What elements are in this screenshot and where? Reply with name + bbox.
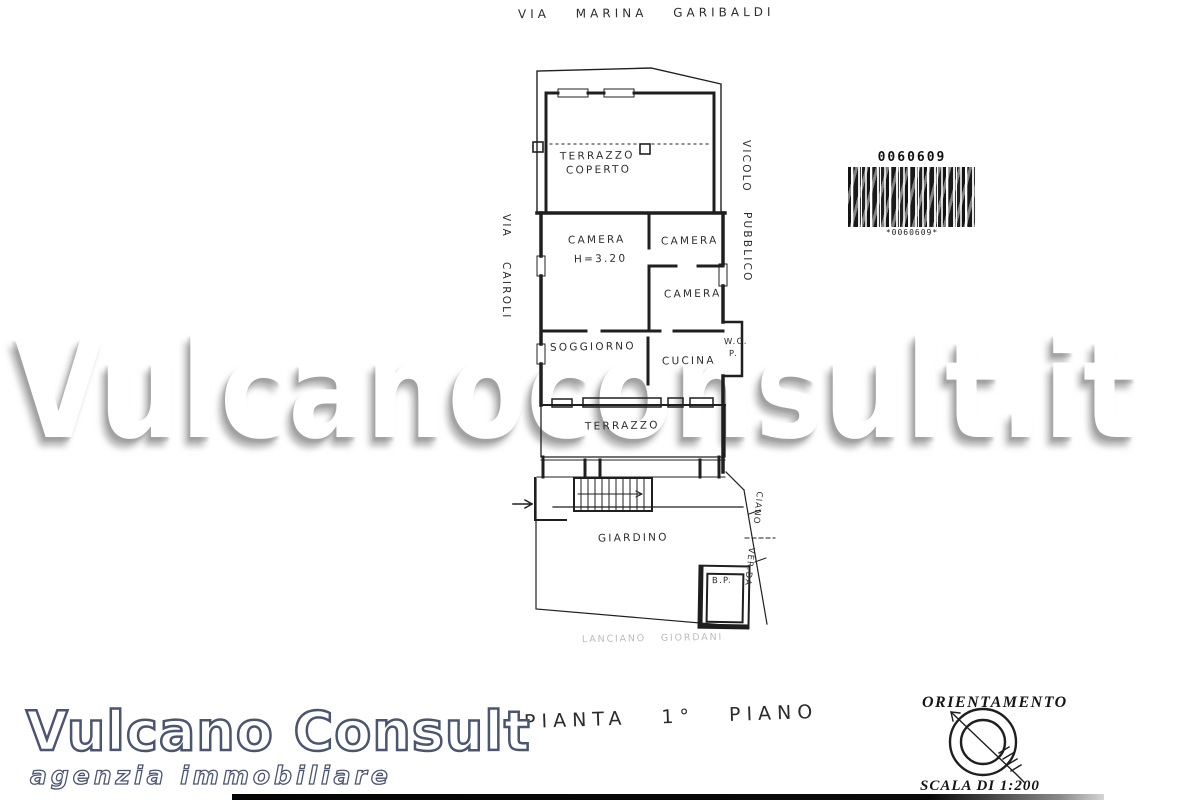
agency-logo-title: Vulcano Consult bbox=[26, 700, 531, 763]
column-symbol bbox=[640, 144, 650, 154]
street-label-left-2: CAIROLI bbox=[500, 262, 512, 320]
scale-label: SCALA DI 1:200 bbox=[920, 778, 1040, 795]
area-label-giardino: GIARDINO bbox=[598, 531, 669, 544]
room-label-terrazzo-coperto-2: COPERTO bbox=[566, 163, 631, 176]
floor-plan-drawing bbox=[0, 0, 1200, 803]
entry-arrow-icon bbox=[513, 500, 532, 508]
agency-logo: Vulcano Consult agenzia immobiliare bbox=[26, 700, 531, 790]
street-label-top: VIA MARINA GARIBALDI bbox=[518, 5, 775, 21]
barcode-block: 0060609 *0060609* bbox=[846, 150, 978, 237]
room-label-wc: W.C. bbox=[724, 337, 748, 347]
room-label-camera-2: CAMERA bbox=[661, 234, 719, 247]
compass-icon bbox=[950, 709, 1024, 782]
room-label-terrazzo: TERRAZZO bbox=[585, 419, 660, 432]
scan-edge-artifact bbox=[232, 794, 1104, 800]
street-label-right-1: VICOLO bbox=[740, 140, 752, 193]
barcode-footer: *0060609* bbox=[846, 228, 978, 237]
label-outbuilding: B.P. bbox=[712, 576, 732, 586]
room-label-camera-main: CAMERA bbox=[568, 233, 626, 246]
room-label-wc-p: P. bbox=[729, 349, 738, 359]
terrace-outer-wall bbox=[537, 68, 721, 212]
room-label-terrazzo-coperto: TERRAZZO bbox=[560, 149, 635, 162]
street-label-left-1: VIA bbox=[500, 214, 512, 238]
room-label-cucina: CUCINA bbox=[662, 355, 716, 368]
orientation-title: ORIENTAMENTO bbox=[922, 694, 1068, 712]
barcode-image bbox=[848, 167, 976, 227]
column-symbol bbox=[533, 142, 543, 152]
agency-logo-subtitle: agenzia immobiliare bbox=[30, 761, 531, 790]
room-label-camera-3: CAMERA bbox=[664, 287, 722, 300]
street-label-right-2: PUBBLICO bbox=[741, 212, 753, 283]
room-label-soggiorno: SOGGIORNO bbox=[550, 340, 636, 353]
room-label-camera-height: H=3.20 bbox=[574, 253, 627, 266]
barcode-number: 0060609 bbox=[846, 150, 978, 165]
scanned-floorplan-page: Vulcanoconsult.it VIA MARINA GARIBALDI bbox=[0, 0, 1200, 803]
